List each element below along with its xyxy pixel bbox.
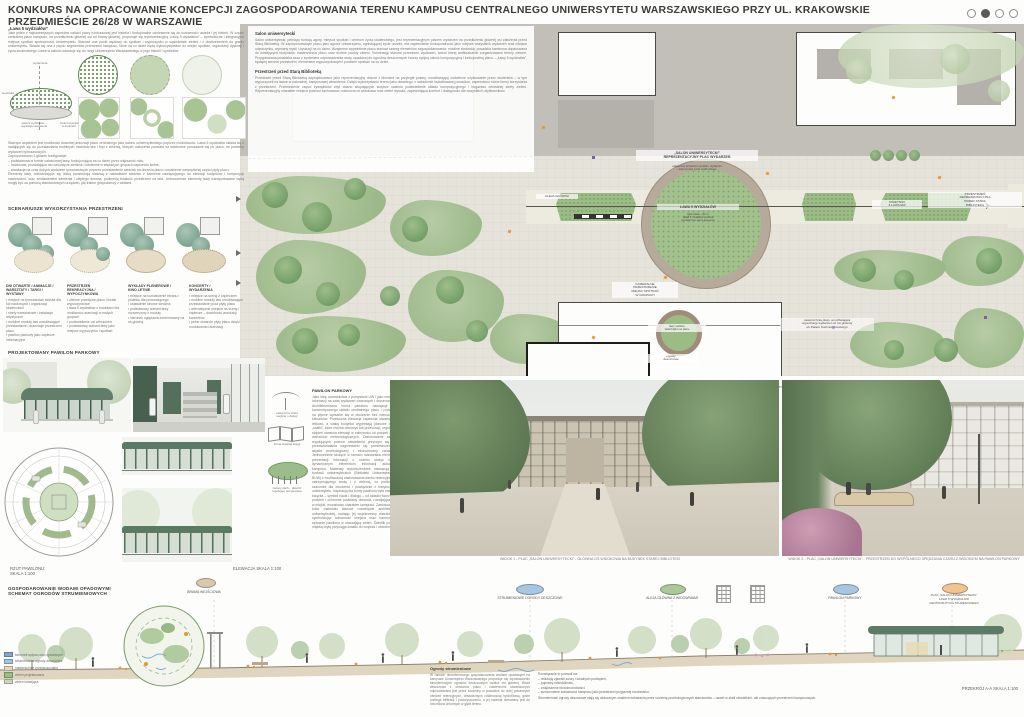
- label-salon-sub: elastyczna przestrzeń spotkań, wydarzeń …: [642, 164, 752, 172]
- tree-icon: [846, 58, 872, 84]
- view2-caption: WIDOK 2 - PLAC „SALON UNIWERSYTECKI” - P…: [788, 557, 1020, 561]
- interior-green-panel: [163, 382, 181, 414]
- shrub-icon: [883, 150, 894, 161]
- stream-garden-svg: [116, 598, 212, 694]
- interior-floor: [133, 422, 265, 432]
- axon-label-bottom: ława 5 wydziałów – regulacja ustawienia: [14, 122, 54, 129]
- person-silhouette: [99, 410, 105, 424]
- plaza-sketch: [126, 249, 166, 273]
- page-dot[interactable]: [967, 9, 976, 18]
- gate-marker-icon: [196, 578, 216, 588]
- legend-label: zieleń projektowana: [15, 673, 44, 677]
- scenario-bullets: ▪ zielone przedpole placu i leżaki wypoc…: [67, 298, 124, 334]
- tree-icon: [466, 320, 488, 342]
- plan-fragment-tile: [130, 97, 174, 139]
- label-reprezentacyjna: PRZESTRZEŃ REPREZENTACYJNA PRZED STARĄ B…: [928, 192, 1022, 208]
- scenario-bullets: ▪ miejsce na tymczasowe stoiska dla kół …: [6, 298, 63, 343]
- przekroj-label: PRZEKRÓJ A-A SKALA 1:100: [858, 686, 1018, 691]
- przestrzen-body: Przestrzeń przed Starą Biblioteką zaproj…: [255, 76, 527, 94]
- book-page: [280, 426, 292, 442]
- building-sketch: [144, 217, 164, 235]
- tree-icon: [894, 270, 914, 290]
- sketch-label: forma otwartej księgi: [264, 443, 310, 446]
- person-silhouette: [942, 486, 946, 499]
- scenario-sketches-row: [4, 215, 246, 281]
- view1-photo: [390, 380, 779, 556]
- flower-bed: [782, 508, 862, 556]
- pavilion-floor-plan: [2, 440, 116, 564]
- tree-icon: [436, 276, 464, 304]
- lamp-marker-icon: [984, 316, 987, 319]
- legend-swatch-garden: [4, 659, 13, 664]
- tree-crown-diagram-3: [182, 55, 222, 95]
- pavilion-elevation-1: [122, 437, 232, 475]
- tree-icon: [884, 340, 904, 360]
- bench-marker-icon: [766, 172, 770, 176]
- section-pavilion: [868, 626, 1004, 656]
- scenario-col-3: WYKŁADY PLENEROWE / KINO LETNIE ▪ miejsc…: [128, 284, 185, 342]
- canopy-arc: [272, 392, 300, 407]
- person-silhouette: [690, 492, 694, 506]
- pavilion-text-body: Jako ideę uczestnictwa z pomysłami UW i …: [312, 395, 396, 530]
- shrub-icon: [909, 150, 920, 161]
- grid-icon: [750, 585, 765, 603]
- legend-label: nawierzchnie przepuszczalne: [15, 666, 58, 670]
- elevation-roof: [122, 526, 232, 533]
- site-plan: Salon uniwersytecki Salon uniwersytecki,…: [240, 24, 1024, 376]
- tree-icon: [344, 178, 366, 200]
- tree-crown-diagram-2: [130, 55, 170, 95]
- legend-swatch-green-existing: [4, 679, 13, 684]
- label-lawy-mobilne: ławy mobilne wokół dębu na placu: [648, 324, 706, 332]
- plan-green-patch: [256, 240, 366, 314]
- label-kwietniki: KWIETNIKI Z ŁAWKAMI: [872, 200, 922, 209]
- tree-icon: [940, 44, 970, 74]
- legend-swatch-flow: [4, 652, 13, 657]
- scenarios-heading: SCENARIUSZE WYKORZYSTANIA PRZESTRZENI: [8, 206, 123, 211]
- tree-icon: [852, 258, 876, 282]
- person-silhouette: [846, 482, 851, 495]
- stream-gardens-heading: Ogrody strumieniowe: [430, 666, 530, 671]
- pavilion-plan-svg: [2, 440, 116, 564]
- scenario-col-4: KONCERTY / WYDARZENIA ▪ miejsce na scenę…: [189, 284, 246, 342]
- label-lawa-title: ŁAWA 5 WYDZIAŁÓW: [657, 204, 739, 210]
- grid-icon: [716, 585, 731, 603]
- page-indicator: [962, 5, 1018, 23]
- tree-icon: [274, 256, 302, 284]
- concept-sketch-canopy: elastyczna strefa wejścia i obsługi: [264, 390, 310, 420]
- salon-body: Salon uniwersytecki, pełniący funkcję ag…: [255, 38, 527, 65]
- label-nota: nawierzchnia placu umożliwiająca organiz…: [780, 318, 874, 331]
- plan-fragment-tile: [78, 97, 120, 139]
- elevation-base-line: [122, 470, 232, 471]
- plan-building: [558, 100, 654, 148]
- tree-icon: [292, 328, 318, 354]
- legend-swatch-green-new: [4, 672, 13, 677]
- legend-row: nawierzchnie przepuszczalne: [4, 666, 114, 671]
- person-silhouette: [866, 483, 871, 495]
- intro-body: Jako jeden z najistotniejszych aspektów …: [8, 31, 244, 53]
- tree-crown-diagram-1: [78, 55, 118, 95]
- tree-icon: [402, 216, 428, 242]
- section-legend: kierunek spływu wód opadowych strumienio…: [4, 652, 114, 686]
- plan-building: [558, 32, 656, 96]
- person-silhouette: [460, 498, 464, 513]
- pavilion-text-heading: PAWILON PARKOWY: [312, 388, 396, 393]
- scale-bar: [574, 214, 632, 219]
- pavilion-heading: PROJEKTOWANY PAWILON PARKOWY: [8, 350, 100, 355]
- axon-label-left: siedziska: [0, 92, 16, 95]
- building-sketch: [88, 217, 108, 235]
- scenario-sketch-2: [60, 215, 116, 279]
- label-aleja: ALEJA GŁÓWNA: [536, 194, 578, 199]
- main-alley-marker-icon: [660, 584, 686, 595]
- interior-bleacher-steps: [183, 392, 217, 418]
- label-kameralne: KAMERALNE PRZESTRZENIE MIEJSC SPOTKAŃ W …: [612, 282, 678, 298]
- stream-gardens-text-left: Ogrody strumieniowe W ramach strumieniow…: [430, 666, 530, 706]
- page-dot[interactable]: [1009, 9, 1018, 18]
- intro-block: „Ława 5 wydziałów” Jako jeden z najistot…: [8, 26, 244, 53]
- pavilion-elevation-2: [122, 488, 232, 562]
- plaza-sketch: [182, 249, 226, 273]
- building-sketch: [200, 217, 220, 235]
- plan-building-outline: [526, 342, 650, 376]
- elevation-roof: [122, 442, 232, 449]
- person-silhouette: [596, 488, 600, 500]
- gate-marker-label: BRAMA WEJŚCIOWA: [170, 590, 238, 594]
- lawa-5-wydzialow-circle: [642, 160, 770, 288]
- scenario-sketch-1: [4, 215, 60, 279]
- elevation-base-line: [122, 554, 232, 555]
- scenario-columns: DNI OTWARTE / ANIMACJE / WARSZTATY / TAR…: [6, 284, 246, 342]
- person-silhouette: [223, 394, 230, 414]
- stream-gardens-body: W ramach strumieniowego gospodarowania w…: [430, 673, 530, 707]
- concept-sketch-green-roof: zielony dach – płaszcz regulujący temper…: [264, 460, 310, 504]
- rain-garden-marker-icon: [516, 584, 544, 595]
- plan-fragment-tile: [182, 97, 246, 139]
- elewacja-label: ELEWACJA SKALA 1:100: [233, 566, 281, 571]
- plan-overlay-textbox: Salon uniwersytecki Salon uniwersytecki,…: [248, 26, 534, 172]
- tree-icon: [262, 182, 288, 208]
- rzut-pawilonu-label: RZUT PAWILONU: SKALA 1:100: [10, 566, 45, 576]
- lawa-title-text: ŁAWA 5 WYDZIAŁÓW: [680, 205, 716, 209]
- pavilion-exterior-render: [3, 358, 131, 432]
- bench-marker-icon: [664, 276, 668, 280]
- legend-swatch-surface: [4, 666, 13, 671]
- bench-marker-icon: [508, 230, 512, 234]
- tree-icon: [302, 202, 332, 232]
- water-management-heading: GOSPODAROWANIE WODAMI OPADOWYMI SCHEMAT …: [8, 586, 111, 596]
- elevation-columns: [124, 533, 230, 553]
- sketch-label: elastyczna strefa wejścia i obsługi: [264, 412, 310, 419]
- book-page: [292, 426, 304, 442]
- person-silhouette: [33, 410, 39, 424]
- elevation-columns: [124, 449, 230, 469]
- view1-caption: WIDOK 1 - PLAC „SALON UNIWERSYTECKI” - G…: [420, 557, 760, 561]
- stream-garden-plan: [116, 598, 212, 694]
- plaza-marker-label: PLAC „SALON UNIWERSYTECKI” ŁAWA 5 WYDZIA…: [902, 594, 1006, 605]
- plan-green-patch: [954, 308, 1024, 368]
- bench-axonometric-diagram: wydarzenia siedziska zieleń wysoka w don…: [2, 66, 78, 134]
- pavilion-interior-render: [133, 358, 265, 432]
- legend-label: zieleń istniejąca: [15, 680, 38, 684]
- competition-board: KONKURS NA OPRACOWANIE KONCEPCJI ZAGOSPO…: [0, 0, 1024, 717]
- stream-gardens-intro: Rozwiązanie to pozwoli na:: [538, 672, 1008, 676]
- plan-green-patch: [834, 250, 946, 290]
- tree-icon: [96, 247, 110, 261]
- legend-row: strumieniowe ogrody deszczowe: [4, 659, 114, 664]
- scenario-title: DNI OTWARTE / ANIMACJE / WARSZTATY / TAR…: [6, 284, 63, 296]
- person-silhouette: [636, 482, 639, 492]
- page-dot-active[interactable]: [981, 9, 990, 18]
- pavilion-marker-icon: [833, 584, 859, 595]
- person-silhouette: [149, 398, 156, 416]
- modularity-paragraph: Ważnym aspektem jest możliwość dowolnej …: [8, 141, 244, 186]
- plaza-sketch: [14, 249, 54, 273]
- shrub-icon: [870, 150, 881, 161]
- label-ogrody-deszczowe: ogrody deszczowe: [644, 354, 698, 363]
- plan-courtyard-circle: [656, 310, 702, 356]
- tree-icon: [316, 282, 340, 306]
- scenario-bullets: ▪ miejsce na rozstawienie ekranu i podes…: [128, 294, 185, 325]
- interior-window-wall: [231, 364, 265, 426]
- tree-mass-left: [390, 380, 530, 510]
- roof-columns: [272, 476, 302, 484]
- scenario-sketch-4: [172, 215, 228, 279]
- facade-portico: [566, 438, 604, 482]
- bench-base-ring: [10, 106, 72, 120]
- stream-gardens-closing: Strumieniowe ogrody deszczowe stają się …: [538, 696, 1008, 700]
- legend-label: kierunek spływu wód opadowych: [15, 653, 63, 657]
- scenario-col-1: DNI OTWARTE / ANIMACJE / WARSZTATY / TAR…: [6, 284, 63, 342]
- tree-icon: [988, 80, 1010, 102]
- lawn-island: [802, 193, 856, 221]
- legend-label: strumieniowe ogrody deszczowe: [15, 659, 63, 663]
- scenario-col-2: PRZESTRZEŃ REKREACYJNA / WYPOCZYNKOWA ▪ …: [67, 284, 124, 342]
- tree-icon: [380, 286, 400, 306]
- main-alley-marker-label: ALEJA GŁÓWNA Z WIDOWNIAMI: [630, 596, 714, 600]
- tree-icon: [338, 324, 360, 346]
- pavilion-text-block: PAWILON PARKOWY Jako ideę uczestnictwa z…: [312, 388, 396, 530]
- tree-icon: [976, 248, 1002, 274]
- pavilion-marker-label: PAWILON PARKOWY: [810, 596, 880, 600]
- legend-row: zieleń projektowana: [4, 672, 114, 677]
- person-silhouette: [508, 480, 511, 489]
- scenario-title: KONCERTY / WYDARZENIA: [189, 284, 246, 292]
- przestrzen-heading: Przestrzeń przed Starą Biblioteką: [255, 69, 527, 74]
- book-page: [268, 426, 280, 442]
- axon-label-top: wydarzenia: [20, 62, 60, 65]
- scenario-title: PRZESTRZEŃ REKREACYJNA / WYPOCZYNKOWA: [67, 284, 124, 296]
- legend-row: kierunek spływu wód opadowych: [4, 652, 114, 657]
- canopy-post: [285, 398, 286, 410]
- legend-row: zieleń istniejąca: [4, 679, 114, 684]
- lamp-marker-icon: [592, 156, 595, 159]
- shrub-icon: [896, 150, 907, 161]
- label-salon-title: „SALON UNIWERSYTECKI” REPREZENTACYJNY PL…: [664, 151, 731, 160]
- page-dot[interactable]: [995, 9, 1004, 18]
- sketch-label: zielony dach – płaszcz regulujący temper…: [264, 487, 310, 494]
- scenario-sketch-3: [116, 215, 172, 279]
- view2-photo: [782, 380, 1024, 556]
- salon-heading: Salon uniwersytecki: [255, 31, 527, 36]
- label-lawa-sub: łąka niska – 84 m układ 5 modułów siedzi…: [662, 212, 734, 223]
- lamp-post: [978, 434, 980, 504]
- scenario-bullets: ▪ miejsce na scenę z zapleczem ▪ mobilne…: [189, 294, 246, 330]
- concept-sketch-column: elastyczna strefa wejścia i obsługi form…: [264, 390, 310, 507]
- rain-garden-marker-label: STRUMIENIOWE OGRODY DESZCZOWE: [486, 596, 574, 600]
- pavilion-roof: [21, 388, 113, 400]
- tree-icon: [934, 338, 958, 362]
- building-sketch: [32, 217, 52, 235]
- concept-sketch-book: forma otwartej księgi: [264, 423, 310, 457]
- label-salon-uniwersytecki: „SALON UNIWERSYTECKI” REPREZENTACYJNY PL…: [636, 150, 758, 161]
- scenario-title: WYKŁADY PLENEROWE / KINO LETNIE: [128, 284, 185, 292]
- bench-marker-icon: [938, 176, 942, 180]
- view-direction-arrow-icon: [236, 196, 241, 202]
